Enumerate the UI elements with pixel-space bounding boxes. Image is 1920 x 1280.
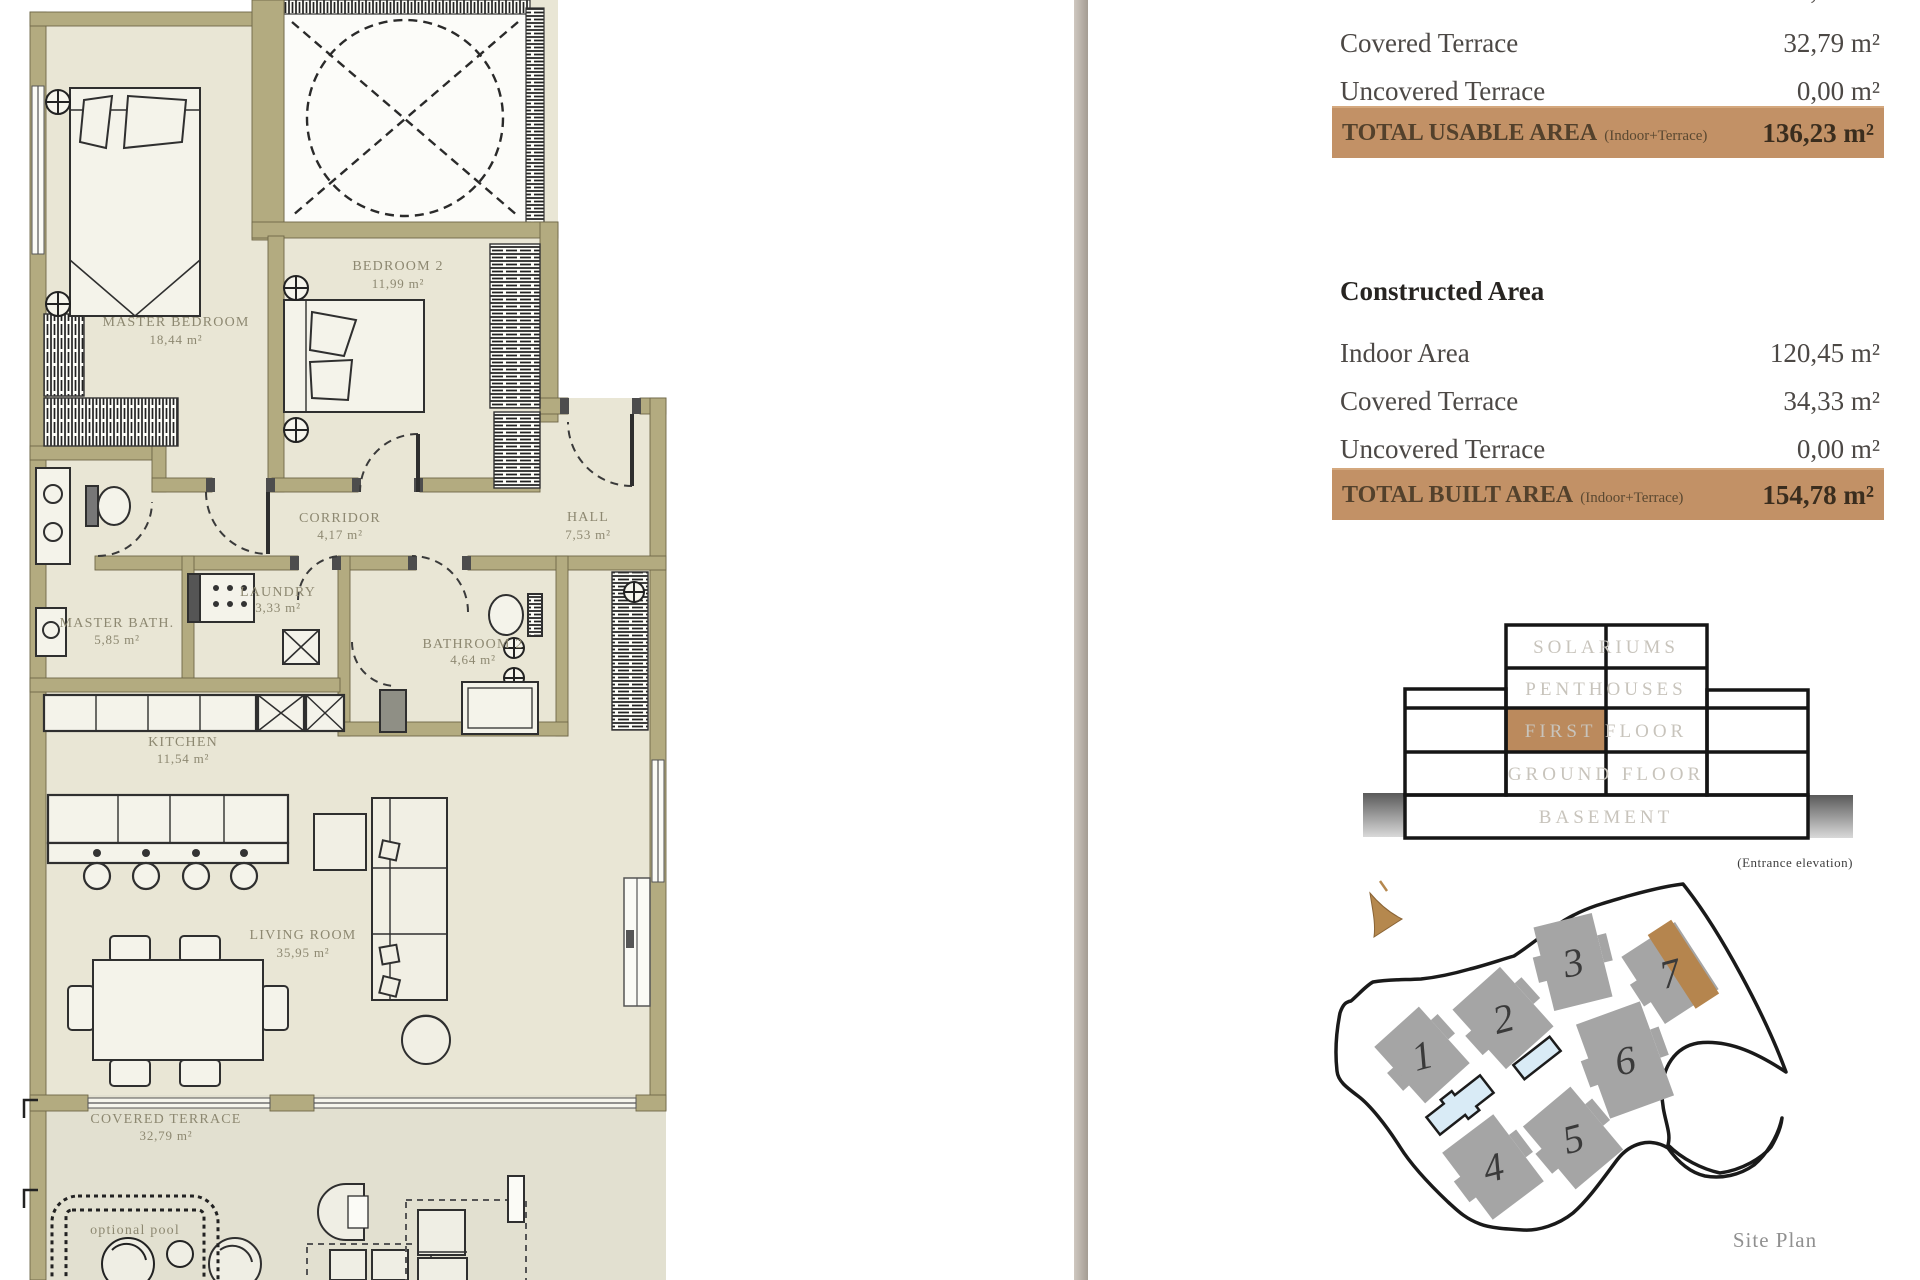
row-value: 32,79 m²: [1783, 28, 1884, 59]
armchair: [402, 1016, 450, 1064]
elevation-diagram: SOLARIUMS PENTHOUSES FIRST FLOOR GROUND …: [1350, 615, 1870, 880]
room-label: LIVING ROOM: [250, 928, 357, 943]
row-value: 0,00 m²: [1797, 434, 1884, 465]
room-label: COVERED TERRACE: [90, 1112, 241, 1127]
usable-row-covered: Covered Terrace 32,79 m²: [1332, 26, 1884, 60]
master-bed: [70, 88, 200, 316]
floorplan-sheet: MASTER BEDROOM 18,44 m² BEDROOM 2 11,99 …: [0, 0, 1920, 1280]
total-value: 154,78 m²: [1762, 480, 1884, 511]
total-built-banner: TOTAL BUILT AREA (Indoor+Terrace) 154,78…: [1332, 468, 1884, 520]
row-label: Covered Terrace: [1332, 386, 1518, 417]
entrance-elevation-caption: (Entrance elevation): [1737, 855, 1853, 870]
constructed-area-title: Constructed Area: [1340, 276, 1544, 307]
hall-cabinet: [624, 878, 650, 1006]
row-value: 120,45 m²: [1770, 338, 1884, 369]
patio-hatch-top: [284, 0, 530, 14]
patio-hatch-right: [526, 8, 544, 224]
total-label: TOTAL BUILT AREA: [1332, 482, 1573, 509]
built-row-indoor: Indoor Area 120,45 m²: [1332, 336, 1884, 370]
bedroom2-bed: [284, 300, 424, 412]
room-area: 11,99 m²: [372, 276, 424, 291]
area-tables: Indoor Area 103,44 m² Covered Terrace 32…: [1332, 0, 1884, 560]
room-label: BATHROOM 2: [422, 637, 523, 652]
room-label: HALL: [567, 510, 609, 525]
row-label: Uncovered Terrace: [1332, 76, 1545, 107]
floor-label-ground-floor: GROUND FLOOR: [1508, 764, 1704, 785]
room-label: CORRIDOR: [299, 511, 381, 526]
room-area: 32,79 m²: [140, 1128, 193, 1143]
floor-label-first-floor: FIRST FLOOR: [1525, 721, 1687, 742]
ground-shade-right: [1808, 795, 1853, 838]
row-value: 0,00 m²: [1797, 76, 1884, 107]
site-plan: 1 2 3 4 5 6 7 Site Plan: [1330, 875, 1890, 1280]
row-label: Covered Terrace: [1332, 28, 1518, 59]
total-sublabel: (Indoor+Terrace): [1604, 121, 1707, 145]
coffee-table: [314, 814, 366, 870]
sofa: [372, 798, 447, 1000]
total-usable-banner: TOTAL USABLE AREA (Indoor+Terrace) 136,2…: [1332, 106, 1884, 158]
ground-shade-left: [1363, 793, 1405, 837]
pool-label: optional pool: [90, 1223, 180, 1238]
floor-plan-drawing: MASTER BEDROOM 18,44 m² BEDROOM 2 11,99 …: [0, 0, 700, 1280]
room-area: 4,17 m²: [317, 527, 363, 542]
room-area: 5,85 m²: [94, 632, 140, 647]
usable-row-uncovered: Uncovered Terrace 0,00 m²: [1332, 74, 1884, 108]
row-label: Uncovered Terrace: [1332, 434, 1545, 465]
room-area: 35,95 m²: [277, 945, 330, 960]
row-value: 34,33 m²: [1783, 386, 1884, 417]
total-label: TOTAL USABLE AREA: [1332, 120, 1597, 147]
room-label: LAUNDRY: [240, 585, 316, 600]
room-label: MASTER BEDROOM: [102, 315, 249, 330]
room-label: KITCHEN: [148, 735, 218, 750]
row-label: Indoor Area: [1332, 0, 1470, 6]
row-value: 103,44 m²: [1770, 0, 1884, 6]
row-label: Indoor Area: [1332, 338, 1470, 369]
usable-row-indoor: Indoor Area 103,44 m²: [1332, 0, 1884, 7]
room-area: 4,64 m²: [450, 652, 496, 667]
built-row-covered: Covered Terrace 34,33 m²: [1332, 384, 1884, 418]
floor-label-solariums: SOLARIUMS: [1533, 637, 1679, 658]
total-value: 136,23 m²: [1762, 118, 1884, 149]
page-divider: [1074, 0, 1088, 1280]
total-sublabel: (Indoor+Terrace): [1580, 483, 1683, 507]
built-row-uncovered: Uncovered Terrace 0,00 m²: [1332, 432, 1884, 466]
floor-label-basement: BASEMENT: [1539, 807, 1673, 828]
room-label: MASTER BATH.: [60, 616, 175, 631]
north-arrow-icon: [1370, 881, 1402, 937]
room-area: 11,54 m²: [157, 751, 209, 766]
room-area: 7,53 m²: [565, 527, 611, 542]
floor-label-penthouses: PENTHOUSES: [1525, 679, 1686, 700]
room-area: 3,33 m²: [255, 600, 301, 615]
room-area: 18,44 m²: [150, 332, 203, 347]
site-plan-label: Site Plan: [1733, 1228, 1817, 1252]
room-label: BEDROOM 2: [352, 259, 443, 274]
